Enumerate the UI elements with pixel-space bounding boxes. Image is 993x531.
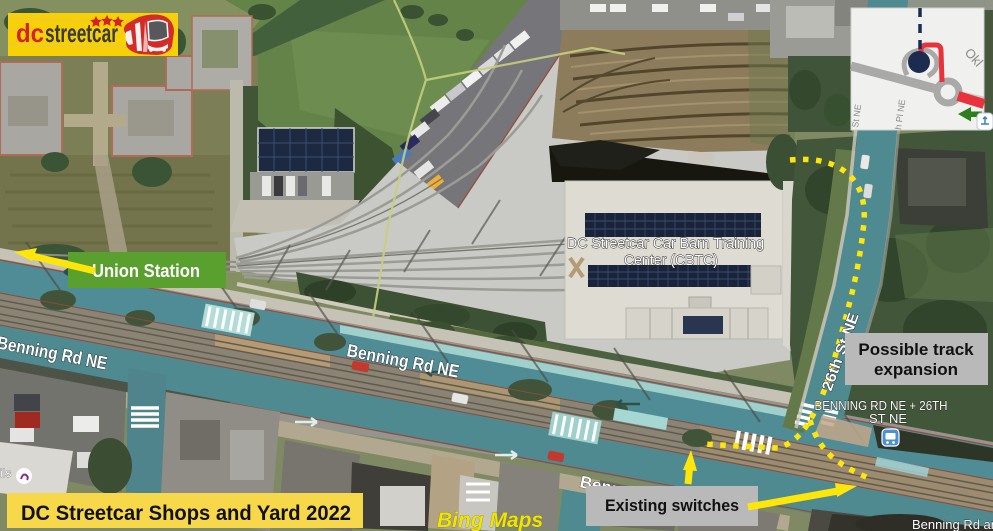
svg-text:expansion: expansion xyxy=(874,360,958,379)
svg-text:Benning Rd and: Benning Rd and xyxy=(912,517,993,531)
svg-text:ils: ils xyxy=(0,466,11,480)
svg-text:DC Streetcar Shops and Yard: DC Streetcar Shops and Yard 2022 xyxy=(21,502,351,525)
svg-text:Center (CBTC): Center (CBTC) xyxy=(624,252,718,269)
svg-text:Union Station: Union Station xyxy=(92,261,200,281)
svg-text:DC Streetcar Car Barn Training: DC Streetcar Car Barn Training xyxy=(567,235,764,252)
svg-text:Existing switches: Existing switches xyxy=(605,496,739,515)
svg-text:ST NE: ST NE xyxy=(869,411,907,426)
svg-text:dc: dc xyxy=(16,18,44,48)
svg-text:Possible track: Possible track xyxy=(858,340,974,359)
svg-text:Bing Maps: Bing Maps xyxy=(437,509,543,531)
